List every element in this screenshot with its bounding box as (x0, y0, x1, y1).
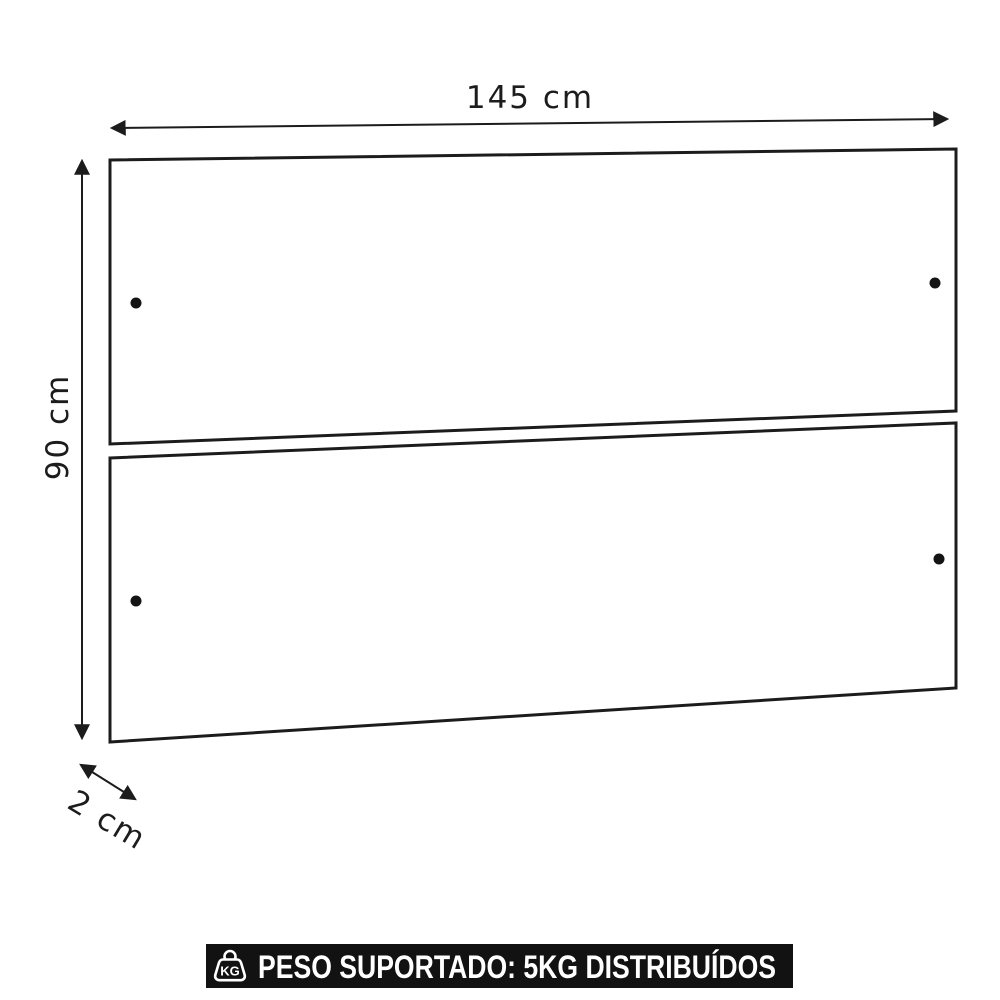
mounting-hole-top-left (131, 298, 142, 309)
banner-text: PESO SUPORTADO: 5KG DISTRIBUÍDOS (258, 949, 776, 985)
diagram-canvas: 145 cm 90 cm 2 cm KG PESO SUPORTADO: 5KG… (0, 0, 1000, 1000)
product-dimension-diagram: 145 cm 90 cm 2 cm KG PESO SUPORTADO: 5KG… (0, 0, 1000, 1000)
mounting-hole-bottom-right (934, 554, 945, 565)
mounting-hole-bottom-left (131, 596, 142, 607)
weight-capacity-banner: KG PESO SUPORTADO: 5KG DISTRIBUÍDOS (206, 944, 793, 988)
top-panel (110, 149, 956, 444)
width-dimension-label: 145 cm (466, 80, 594, 116)
depth-dimension-label: 2 cm (62, 783, 153, 858)
kg-icon-label: KG (220, 964, 240, 979)
bottom-panel (110, 423, 956, 742)
height-dimension-label: 90 cm (40, 374, 76, 481)
mounting-hole-top-right (930, 278, 941, 289)
width-dimension-arrow (112, 119, 947, 128)
